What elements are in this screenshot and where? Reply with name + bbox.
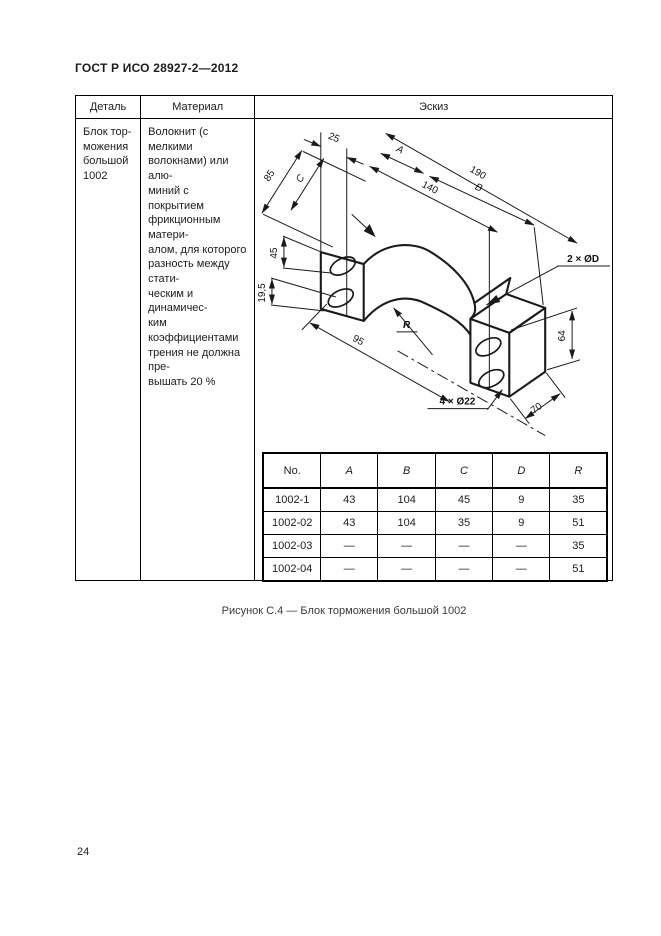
cell-d: 9	[493, 512, 550, 535]
cell-b: 104	[378, 488, 435, 512]
cell-no: 1002-02	[263, 512, 320, 535]
cell-c: 45	[435, 488, 492, 512]
extension-lines	[263, 132, 580, 435]
cell-r: 51	[550, 558, 607, 582]
dim-col-c: C	[435, 453, 492, 488]
table-row: 1002-1 43 104 45 9 35	[263, 488, 607, 512]
dim-col-b: B	[378, 453, 435, 488]
spec-table-header-row: Деталь Материал Эскиз	[76, 96, 613, 119]
dim-col-no: No.	[263, 453, 320, 488]
col-header-sketch: Эскиз	[255, 96, 613, 119]
dim-col-d: D	[493, 453, 550, 488]
dim-label-190: 190	[468, 164, 488, 182]
hole-ellipse	[326, 285, 357, 311]
cell-b: —	[378, 535, 435, 558]
dim-label-140: 140	[420, 179, 440, 197]
standard-number: ГОСТ Р ИСО 28927-2—2012	[75, 61, 238, 75]
cell-r: 35	[550, 535, 607, 558]
cell-a: —	[321, 535, 378, 558]
cell-d: —	[493, 535, 550, 558]
cell-c: —	[435, 558, 492, 582]
cell-a: 43	[321, 488, 378, 512]
dim-col-a: A	[321, 453, 378, 488]
table-row: 1002-03 — — — — 35	[263, 535, 607, 558]
document-page: ГОСТ Р ИСО 28927-2—2012 Деталь Материал …	[0, 0, 661, 936]
hole-ellipse	[476, 366, 507, 392]
part-outline	[321, 245, 545, 397]
table-row: 1002-04 — — — — 51	[263, 558, 607, 582]
spec-table-body-row: Блок тор- можения большой 1002 Волокнит …	[76, 119, 613, 581]
cell-b: —	[378, 558, 435, 582]
dim-label-R: R	[403, 320, 411, 331]
dimension-labels: 25 85 C A 140 B 190 45 19,5 95 R 4 × Ø22	[257, 131, 599, 416]
dim-label-4xd22: 4 × Ø22	[440, 397, 476, 408]
dim-label-64: 64	[557, 330, 568, 342]
detail-cell: Блок тор- можения большой 1002	[76, 119, 141, 581]
dim-label-2xdD: 2 × ØD	[567, 254, 599, 265]
cell-no: 1002-03	[263, 535, 320, 558]
dim-label-25: 25	[327, 131, 342, 146]
material-cell: Волокнит (с мелкими волокнами) или алю- …	[141, 119, 255, 581]
spec-table: Деталь Материал Эскиз Блок тор- можения …	[75, 95, 613, 581]
dim-table-header-row: No. A B C D R	[263, 453, 607, 488]
dim-col-r: R	[550, 453, 607, 488]
detail-text: Блок тор- можения большой 1002	[76, 119, 140, 184]
cell-b: 104	[378, 512, 435, 535]
dimension-table: No. A B C D R 1002-1 43	[262, 452, 608, 582]
cell-a: —	[321, 558, 378, 582]
cell-no: 1002-04	[263, 558, 320, 582]
technical-drawing: 25 85 C A 140 B 190 45 19,5 95 R 4 × Ø22	[255, 119, 612, 454]
col-header-detail: Деталь	[76, 96, 141, 119]
cell-c: 35	[435, 512, 492, 535]
cell-c: —	[435, 535, 492, 558]
sketch-cell: 25 85 C A 140 B 190 45 19,5 95 R 4 × Ø22	[255, 119, 613, 581]
page-number: 24	[77, 846, 89, 858]
cell-d: —	[493, 558, 550, 582]
cell-d: 9	[493, 488, 550, 512]
dim-label-C: C	[295, 172, 309, 185]
dim-label-19-5: 19,5	[257, 283, 268, 303]
material-text: Волокнит (с мелкими волокнами) или алю- …	[141, 119, 254, 390]
cell-r: 35	[550, 488, 607, 512]
dim-label-45: 45	[269, 247, 280, 259]
dim-label-95: 95	[351, 333, 366, 348]
dimension-lines	[262, 133, 610, 418]
cell-a: 43	[321, 512, 378, 535]
cell-r: 51	[550, 512, 607, 535]
dim-label-85: 85	[263, 168, 279, 184]
dim-label-A: A	[394, 143, 406, 156]
table-row: 1002-02 43 104 35 9 51	[263, 512, 607, 535]
cell-no: 1002-1	[263, 488, 320, 512]
hole-ellipse	[328, 253, 359, 279]
figure-caption: Рисунок С.4 — Блок торможения большой 10…	[75, 605, 613, 617]
hole-ellipse	[473, 334, 504, 360]
col-header-material: Материал	[141, 96, 255, 119]
dim-label-B: B	[473, 182, 484, 195]
